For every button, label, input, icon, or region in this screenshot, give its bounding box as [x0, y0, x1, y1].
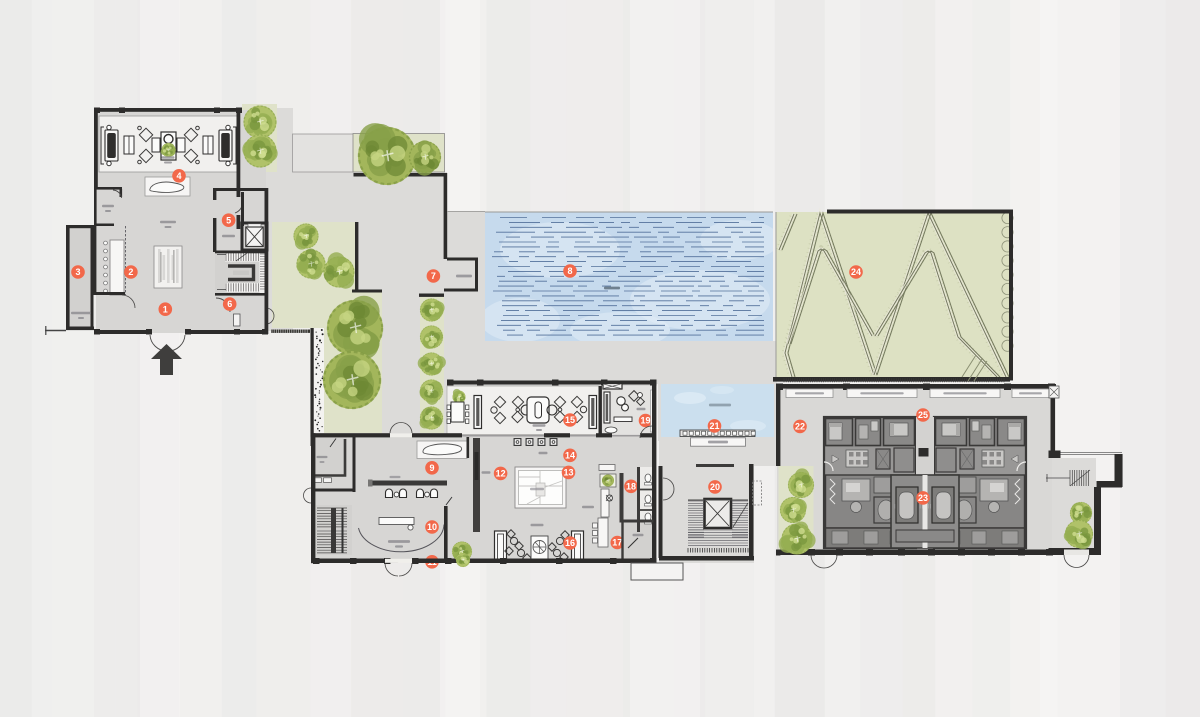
svg-text:6: 6: [227, 299, 232, 309]
svg-text:22: 22: [795, 422, 805, 432]
svg-text:23: 23: [918, 493, 928, 503]
svg-text:15: 15: [565, 415, 575, 425]
svg-text:16: 16: [565, 538, 575, 548]
svg-text:5: 5: [226, 215, 231, 225]
svg-text:19: 19: [640, 416, 650, 426]
svg-text:2: 2: [128, 267, 133, 277]
svg-text:8: 8: [567, 266, 572, 276]
svg-text:12: 12: [496, 469, 506, 479]
svg-text:3: 3: [75, 267, 80, 277]
svg-text:4: 4: [176, 171, 181, 181]
svg-text:10: 10: [427, 522, 437, 532]
svg-text:21: 21: [709, 421, 719, 431]
svg-text:14: 14: [565, 450, 575, 460]
svg-text:13: 13: [563, 468, 573, 478]
svg-text:17: 17: [612, 538, 622, 548]
svg-text:9: 9: [429, 463, 434, 473]
svg-text:25: 25: [918, 410, 928, 420]
svg-text:24: 24: [851, 267, 861, 277]
svg-text:20: 20: [710, 482, 720, 492]
svg-text:1: 1: [163, 304, 168, 314]
svg-text:7: 7: [431, 271, 436, 281]
svg-text:18: 18: [626, 481, 636, 491]
